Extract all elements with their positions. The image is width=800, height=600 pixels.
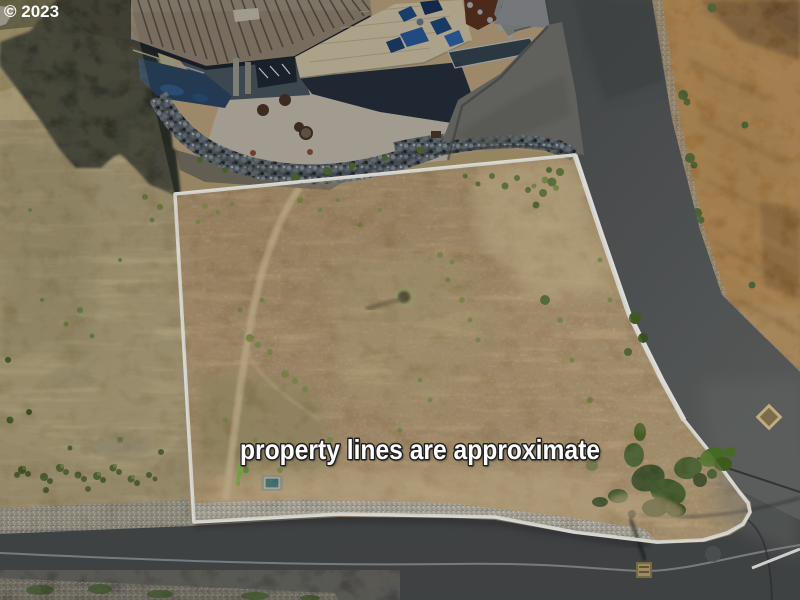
svg-text:property lines are approximate: property lines are approximate xyxy=(240,434,600,465)
svg-text:© 2023: © 2023 xyxy=(4,2,59,21)
